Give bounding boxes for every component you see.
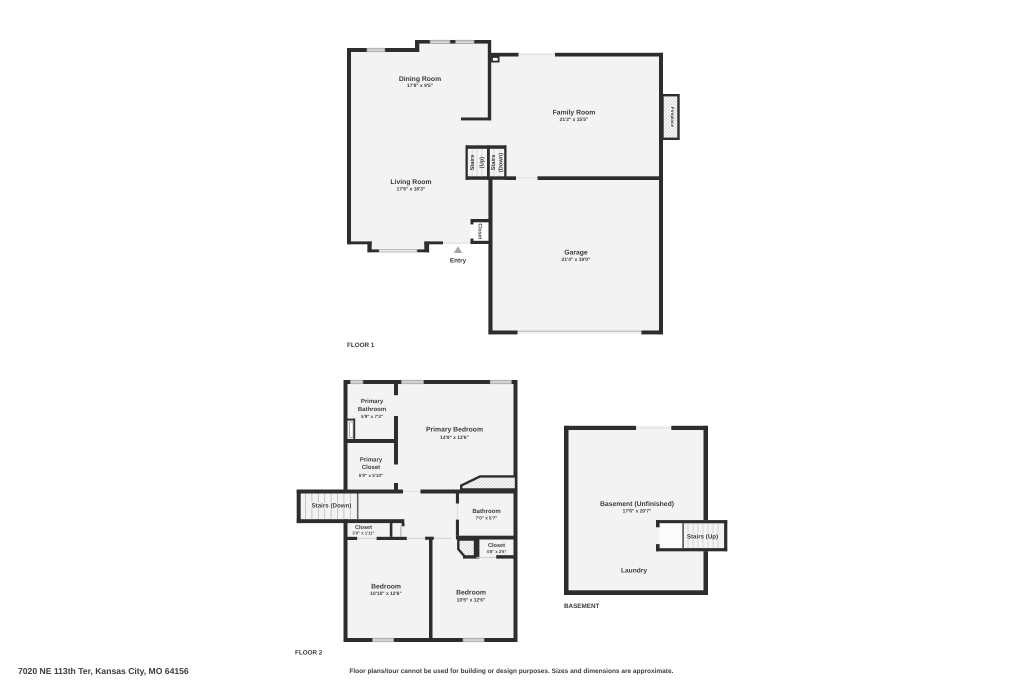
svg-text:Basement (Unfinished): Basement (Unfinished) [600,501,674,508]
svg-text:BASEMENT: BASEMENT [564,603,599,610]
svg-text:Primary: Primary [360,457,383,464]
svg-text:7'0" x 5'7": 7'0" x 5'7" [476,515,498,520]
svg-text:Garage: Garage [564,250,588,257]
svg-text:FLOOR 1: FLOOR 1 [347,342,375,349]
svg-text:Primary: Primary [361,398,384,405]
svg-text:10'10" x 12'6": 10'10" x 12'6" [370,591,401,597]
svg-text:Stairs (Up): Stairs (Up) [687,534,718,541]
svg-text:Entry: Entry [450,258,467,265]
svg-text:Stairs: Stairs [490,155,497,171]
svg-text:Dining Room: Dining Room [399,76,441,83]
svg-text:21'4" x 19'0": 21'4" x 19'0" [562,257,591,263]
svg-text:7020 NE 113th Ter, Kansas City: 7020 NE 113th Ter, Kansas City, MO 64156 [18,666,189,676]
svg-text:Bathroom: Bathroom [472,508,500,515]
svg-text:14'9" x 13'6": 14'9" x 13'6" [440,435,469,441]
svg-text:Bedroom: Bedroom [371,584,401,591]
svg-text:Family Room: Family Room [553,110,596,117]
svg-text:Fireplace: Fireplace [670,107,675,128]
svg-text:17'8" x 9'5": 17'8" x 9'5" [407,83,433,89]
svg-text:Living Room: Living Room [390,179,431,186]
svg-text:Closet: Closet [488,542,505,549]
svg-text:FLOOR 2: FLOOR 2 [295,650,323,657]
svg-text:(Up): (Up) [479,157,486,168]
svg-text:Closet: Closet [476,223,482,239]
svg-text:Floor plans/tour cannot be use: Floor plans/tour cannot be used for buil… [349,668,673,675]
svg-text:Bathroom: Bathroom [358,406,386,413]
svg-text:Stairs: Stairs [469,155,476,171]
svg-text:Stairs (Down): Stairs (Down) [312,502,352,509]
svg-text:17'6" x 16'3": 17'6" x 16'3" [397,186,426,192]
svg-text:5'9" x 1'11": 5'9" x 1'11" [352,531,374,536]
svg-text:21'2" x 15'5": 21'2" x 15'5" [560,117,589,123]
svg-text:4'8" x 2'6": 4'8" x 2'6" [487,549,507,554]
svg-text:Primary Bedroom: Primary Bedroom [426,427,483,434]
svg-text:10'5" x 12'6": 10'5" x 12'6" [457,597,486,603]
svg-text:5'9" x 5'10": 5'9" x 5'10" [359,473,383,478]
svg-text:5'9" x 7'3": 5'9" x 7'3" [361,414,383,419]
svg-text:Bedroom: Bedroom [456,590,486,597]
svg-text:(Down): (Down) [498,153,505,172]
svg-text:Closet: Closet [362,464,380,471]
svg-text:17'6" x 20'7": 17'6" x 20'7" [623,508,652,514]
svg-text:Laundry: Laundry [621,567,647,574]
